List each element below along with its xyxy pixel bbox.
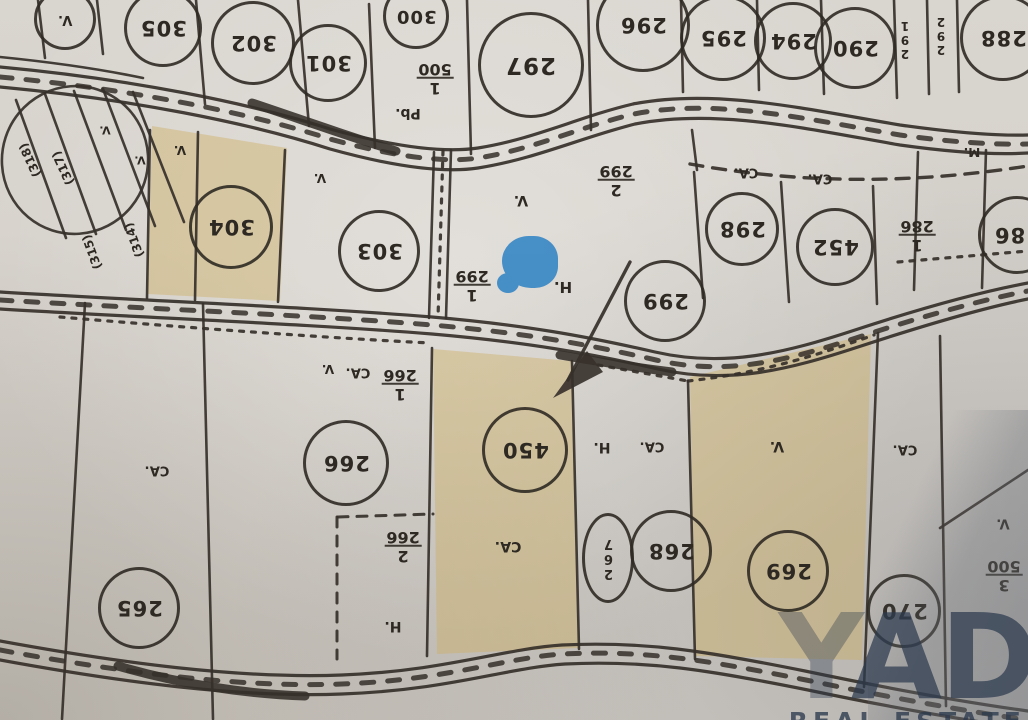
map-label-1299: 1299 [453,267,490,303]
map-label-H: H. [593,439,610,455]
parcel-circle-V: V. [34,0,96,50]
map-label-292: 292 [935,15,947,57]
parcel-circle-296: 296 [596,0,690,72]
map-label-315: (315) [79,233,104,272]
parcel-circle-297: 297 [478,12,584,118]
parcel-circle-300: 300 [383,0,449,49]
map-label-M: M. [964,145,981,159]
map-label-CA: CA. [808,171,833,186]
map-label-V: V. [322,362,334,376]
parcel-circle-301: 301 [289,24,367,102]
parcel-circle-265: 265 [98,567,180,649]
map-label-V: V. [134,154,145,167]
parcel-circle-302: 302 [211,1,295,85]
map-label-314: (314) [121,221,146,260]
watermark-logo: YAD [779,607,1028,707]
parcel-circle-303: 303 [338,210,420,292]
cadastral-map: V.30530230130029729629529429028830430329… [0,0,1028,720]
parcel-circle-298: 298 [705,192,779,266]
map-label-V: V. [174,143,186,157]
parcel-circle-267: 267 [582,513,634,603]
map-label-CA: CA. [734,165,759,180]
parcel-circle-288: 288 [960,0,1028,81]
map-label-1286: 1286 [898,217,935,253]
parcel-circle-299: 299 [624,260,706,342]
map-label-1266: 1266 [381,366,418,402]
map-label-V: V. [514,192,528,208]
map-label-CA: CA. [145,463,170,478]
watermark: YAD REAL ESTATE [779,607,1028,720]
parcel-circle-266: 266 [303,420,389,506]
map-label-V: V. [99,124,110,137]
map-label-291: 291 [899,19,911,61]
parcel-circle-286: 286 [978,196,1028,274]
map-label-CA: CA. [640,439,665,454]
map-label-Pb: Pb. [395,105,421,121]
watermark-letters: AD [851,588,1028,720]
parcel-circle-290: 290 [814,7,896,89]
map-label-2266: 2266 [384,528,421,564]
map-label-2299: 2299 [597,162,634,198]
map-label-CA: CA. [495,538,522,554]
parcel-circle-304: 304 [189,185,273,269]
map-label-H: H. [384,618,401,634]
map-label-317: (317) [49,149,77,188]
map-label-V: V. [314,171,326,185]
map-label-CA: CA. [346,365,371,380]
map-label-318: (318) [16,141,44,180]
map-label-H: H. [554,278,572,296]
location-marker [502,236,558,288]
map-label-1500: 1500 [416,60,453,96]
parcel-circle-450: 450 [482,407,568,493]
parcel-circle-452: 452 [796,208,874,286]
parcel-circle-305: 305 [124,0,202,67]
parcel-circle-268: 268 [630,510,712,592]
watermark-letter-partial: Y [779,588,851,720]
map-label-V: V. [770,438,784,454]
watermark-subtext: REAL ESTATE [779,707,1028,720]
